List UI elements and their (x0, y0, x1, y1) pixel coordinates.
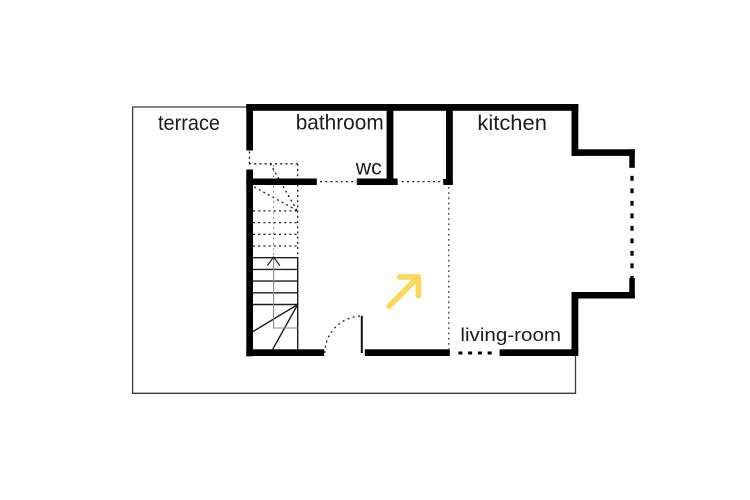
svg-text:living-room: living-room (460, 324, 561, 345)
svg-text:wc: wc (355, 156, 382, 180)
svg-text:kitchen: kitchen (477, 111, 547, 135)
svg-text:terrace: terrace (158, 111, 220, 135)
svg-text:bathroom: bathroom (296, 111, 384, 135)
